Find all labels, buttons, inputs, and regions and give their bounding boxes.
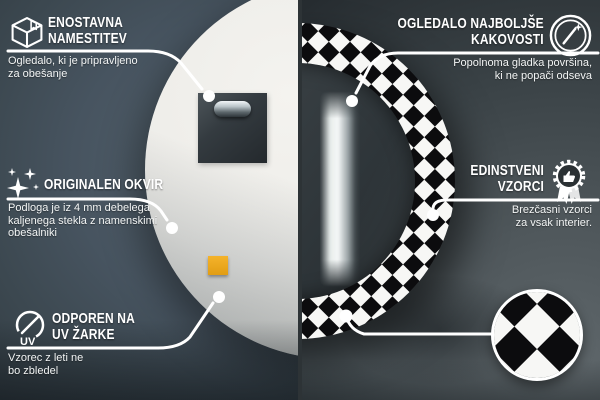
mirror-glass [300, 63, 415, 299]
body-line: bo zbledel [8, 365, 83, 378]
body-line: obešalniki [8, 227, 157, 240]
hanger-slot [214, 101, 251, 117]
callout-title-uv: ODPOREN NA UV ŽARKE [52, 311, 156, 343]
title-line: ODPOREN NA [52, 311, 135, 327]
title-line: KAKOVOSTI [398, 32, 544, 48]
callout-body-patterns: Brezčasni vzorci za vsak interier. [512, 204, 592, 229]
callout-title-frame: ORIGINALEN OKVIR [44, 177, 193, 193]
body-line: Brezčasni vzorci [512, 204, 592, 217]
mirror-product-infographic: ENOSTAVNA NAMESTITEV Ogledalo, ki je pri… [0, 0, 600, 400]
body-line: za obešanje [8, 68, 138, 81]
mirror-front [300, 23, 455, 339]
body-line: Podloga je iz 4 mm debelega [8, 202, 157, 215]
callout-body-quality: Popolnoma gladka površina, ki ne popači … [453, 57, 592, 82]
swatch-pattern [491, 289, 583, 381]
pattern-swatch [491, 289, 583, 381]
title-line: ENOSTAVNA [48, 15, 127, 31]
body-line: Ogledalo, ki je pripravljeno [8, 55, 138, 68]
body-line: kaljenega stekla z namenskimi [8, 215, 157, 228]
checker-frame-pattern [300, 23, 455, 339]
sparkles-icon [4, 164, 42, 202]
callout-body-installation: Ogledalo, ki je pripravljeno za obešanje [8, 55, 138, 80]
title-line: EDINSTVENI [470, 163, 544, 179]
package-icon [8, 15, 46, 50]
callout-body-uv: Vzorec z leti ne bo zbledel [8, 352, 83, 377]
title-line: OGLEDALO NAJBOLJŠE [398, 16, 544, 32]
title-line: UV ŽARKE [52, 327, 135, 343]
window-reflection [320, 91, 360, 287]
callout-title-patterns: EDINSTVENI VZORCI [452, 163, 544, 195]
callout-title-quality: OGLEDALO NAJBOLJŠE KAKOVOSTI [361, 16, 544, 48]
award-badge-icon [547, 157, 591, 207]
title-line: ORIGINALEN OKVIR [44, 177, 163, 193]
hanging-plate [198, 93, 267, 163]
mirror-shine-icon [548, 13, 593, 58]
body-line: za vsak interier. [512, 217, 592, 230]
body-line: ki ne popači odseva [453, 70, 592, 83]
uv-icon-label: UV [20, 336, 36, 348]
body-line: Vzorec z leti ne [8, 352, 83, 365]
title-line: VZORCI [470, 179, 544, 195]
callout-body-frame: Podloga je iz 4 mm debelega kaljenega st… [8, 202, 157, 240]
uv-rays-icon: UV [10, 308, 50, 348]
body-line: Popolnoma gladka površina, [453, 57, 592, 70]
title-line: NAMESTITEV [48, 31, 127, 47]
split-divider [298, 0, 302, 400]
adhesive-pad [208, 256, 228, 275]
callout-title-installation: ENOSTAVNA NAMESTITEV [48, 15, 147, 47]
